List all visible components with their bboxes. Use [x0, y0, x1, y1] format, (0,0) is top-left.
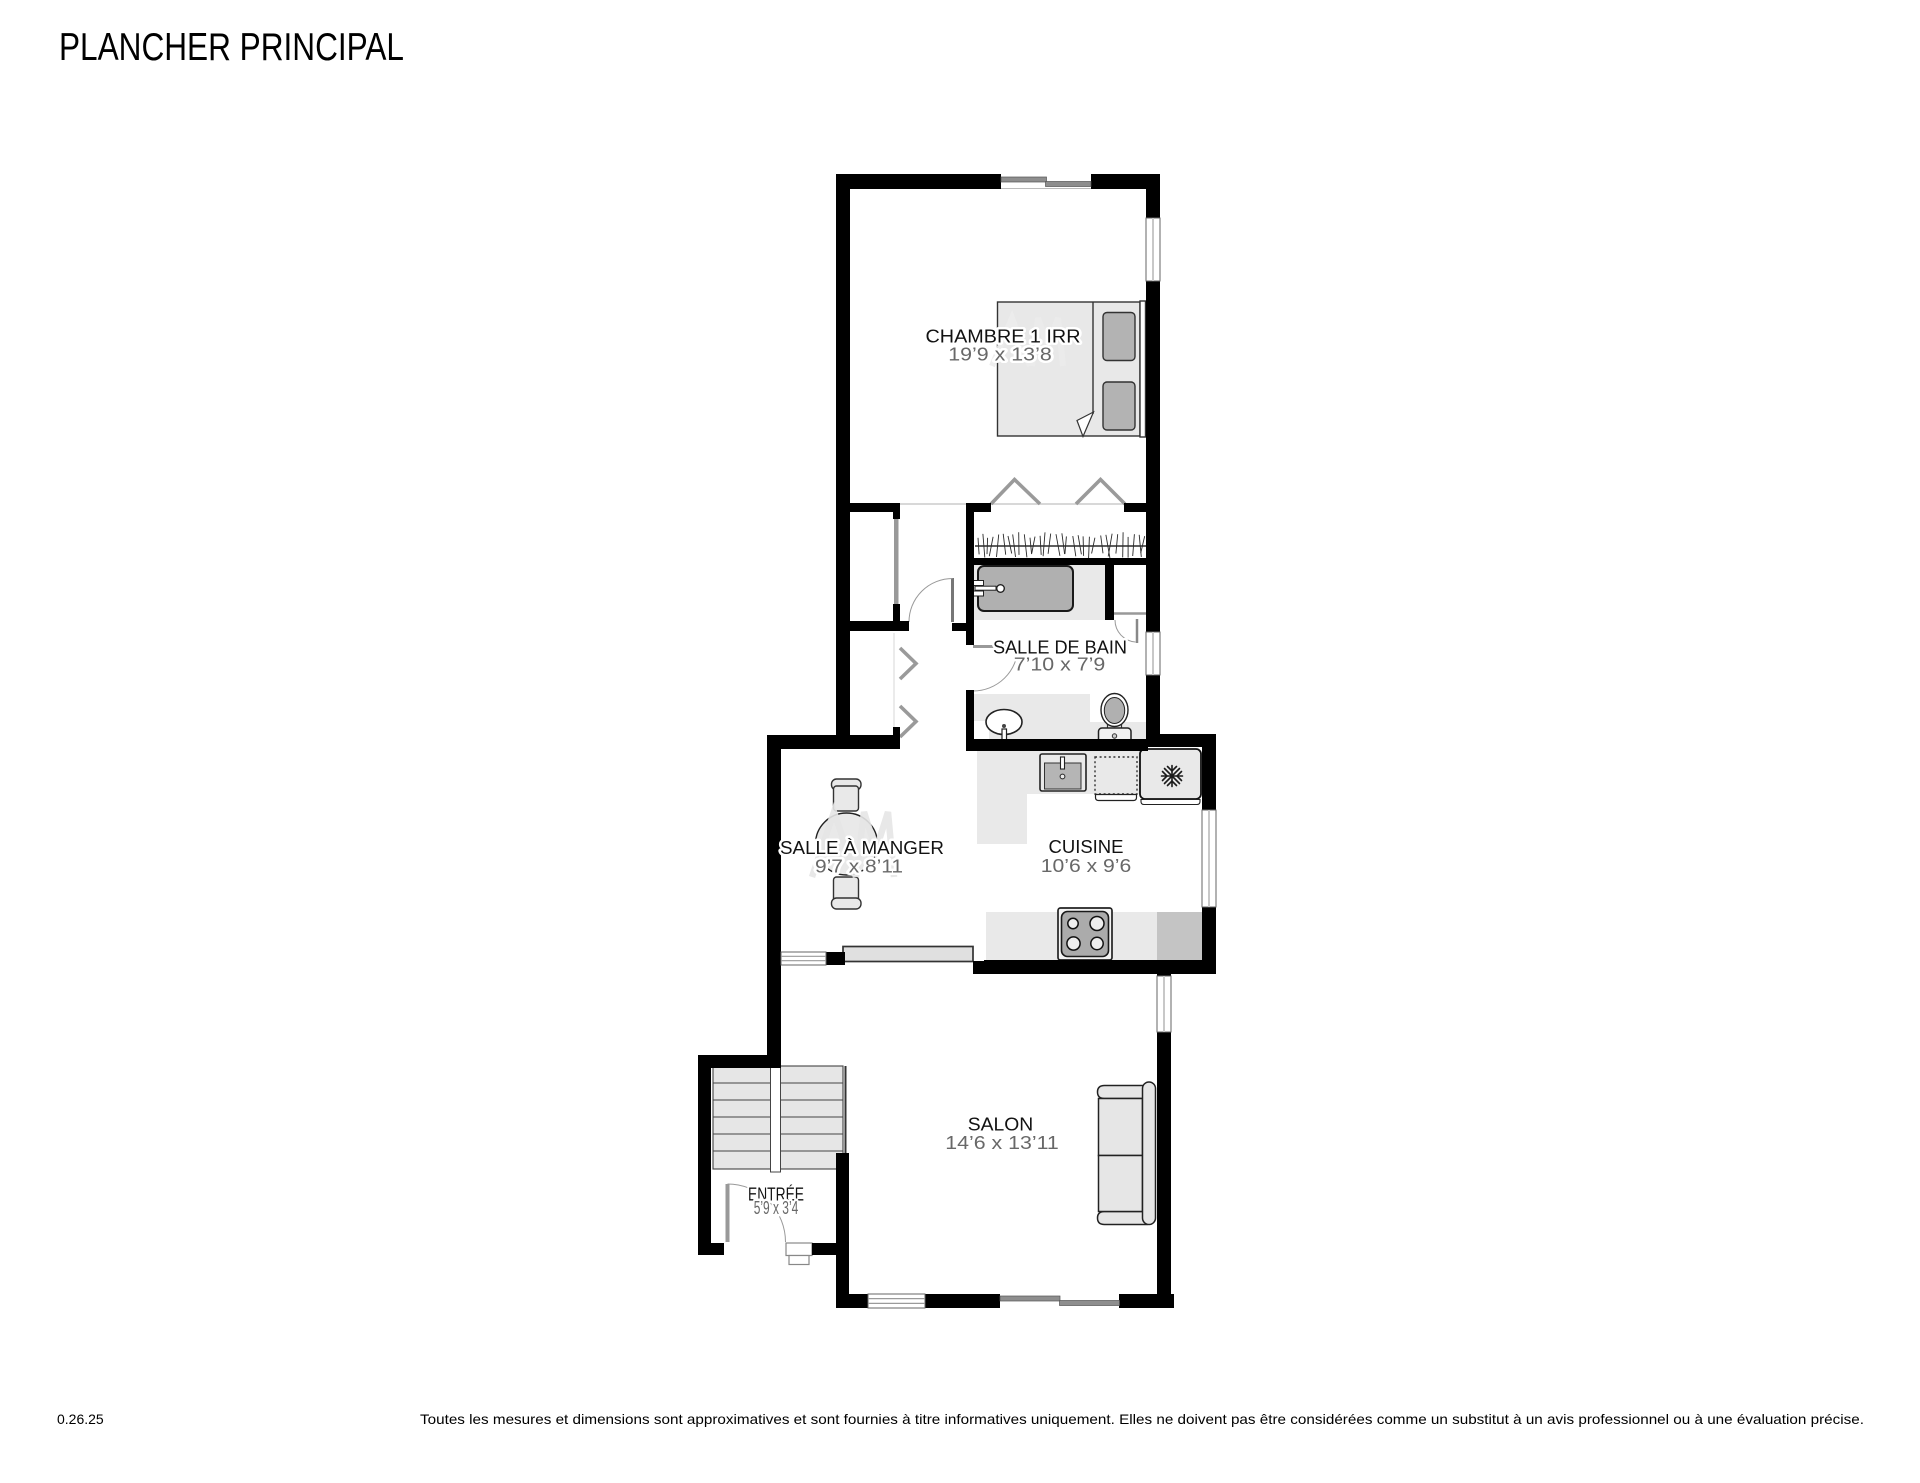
- svg-text:14’6 x 13’11: 14’6 x 13’11: [945, 1133, 1059, 1153]
- svg-text:CUISINE: CUISINE: [1049, 836, 1124, 857]
- svg-text:19’9 x 13’8: 19’9 x 13’8: [948, 345, 1052, 365]
- svg-text:0.26.25: 0.26.25: [57, 1411, 104, 1427]
- svg-text:SALON: SALON: [968, 1114, 1034, 1135]
- svg-text:PLANCHER PRINCIPAL: PLANCHER PRINCIPAL: [59, 26, 404, 69]
- svg-text:5’9 x 3’4: 5’9 x 3’4: [754, 1198, 799, 1218]
- svg-text:7’10 x 7’9: 7’10 x 7’9: [1014, 655, 1106, 675]
- svg-text:9’7 x 8’11: 9’7 x 8’11: [815, 857, 903, 877]
- svg-text:10’6 x 9’6: 10’6 x 9’6: [1041, 856, 1132, 876]
- svg-text:Toutes les mesures et dimensio: Toutes les mesures et dimensions sont ap…: [420, 1411, 1864, 1427]
- svg-text:SALLE À MANGER: SALLE À MANGER: [780, 837, 944, 858]
- svg-text:CHAMBRE 1 IRR: CHAMBRE 1 IRR: [926, 326, 1081, 347]
